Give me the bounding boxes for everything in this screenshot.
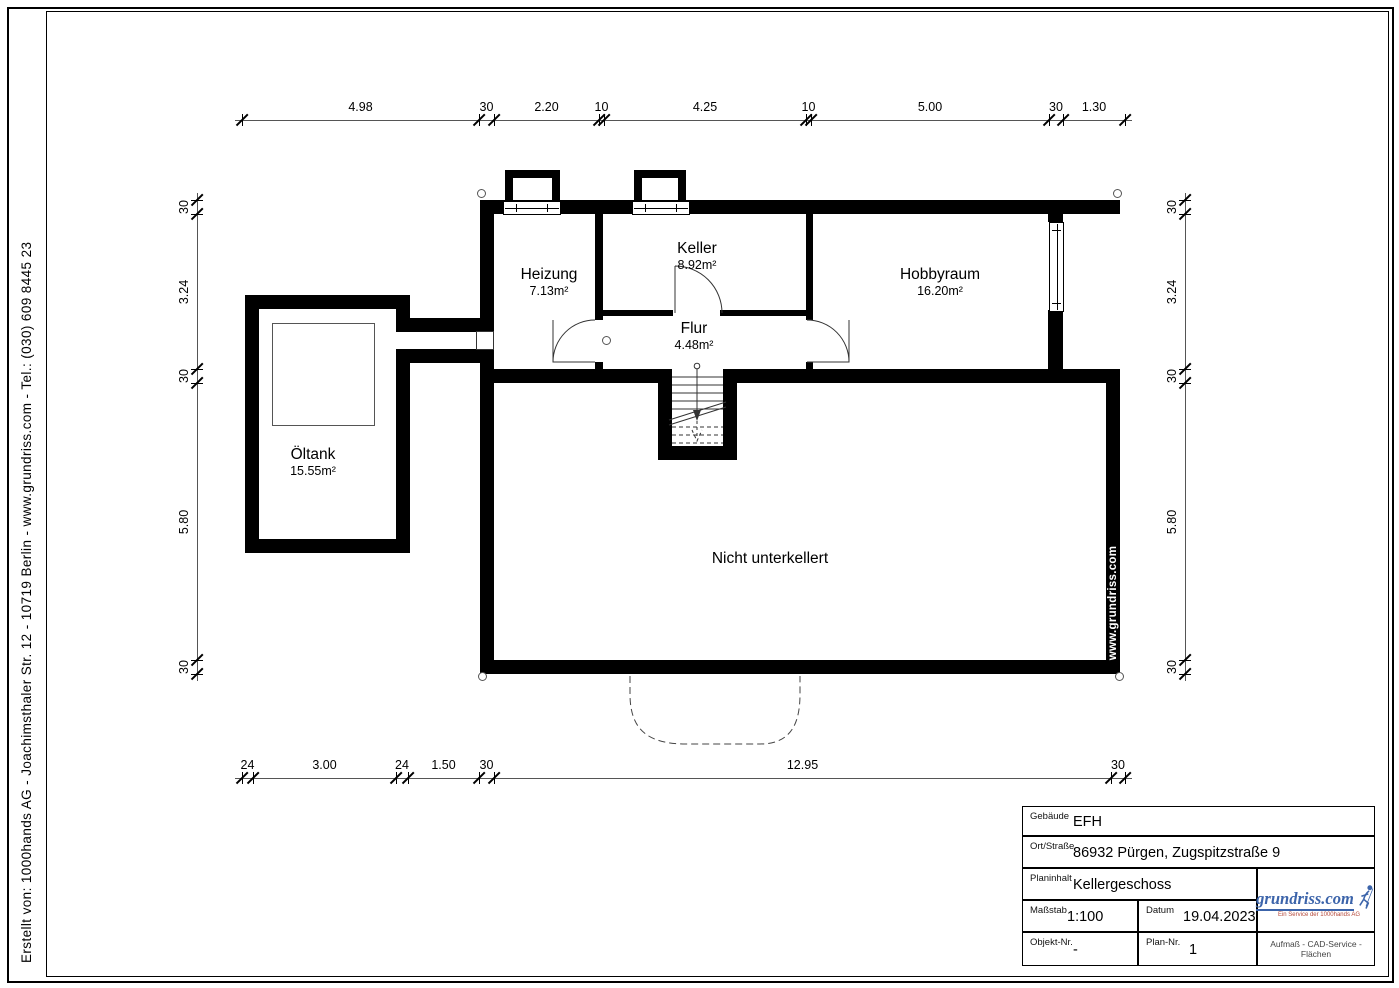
- survey-point: [477, 189, 486, 198]
- room-label-nicht-unterkellert: Nicht unterkellert: [712, 550, 828, 568]
- creator-credit-text: Erstellt von: 1000hands AG - Joachimstha…: [19, 242, 34, 963]
- titleblock-value-plannr: 1: [1189, 942, 1197, 958]
- dimension-value-right: 30: [1165, 660, 1179, 674]
- wall-hobbyraum-divider-upper: [806, 214, 813, 320]
- titleblock-cell-massstab: Maßstab 1:100: [1022, 900, 1138, 932]
- titleblock-value-massstab: 1:100: [1067, 909, 1103, 925]
- dimension-value-top: 1.30: [1082, 100, 1106, 114]
- dimension-value-left: 30: [177, 660, 191, 674]
- window-hobbyraum: [1049, 222, 1064, 312]
- dimension-value-left: 5.80: [177, 509, 191, 533]
- room-name: Keller: [677, 240, 717, 258]
- window-tick: [645, 204, 646, 212]
- titleblock-label: Datum: [1146, 905, 1174, 916]
- dimension-tick-cross: [1179, 383, 1191, 384]
- wall-hobbyraum-divider-lower: [806, 362, 813, 369]
- wall-passage-top: [403, 318, 480, 332]
- titleblock-cell-datum: Datum 19.04.2023: [1138, 900, 1257, 932]
- survey-point: [602, 336, 611, 345]
- wall-heizung-divider-lower: [595, 362, 603, 369]
- window-glass-line: [505, 208, 559, 209]
- dimension-tick-cross: [1179, 660, 1191, 661]
- window-heizung: [503, 201, 561, 215]
- titleblock-cell-logo: grundriss.com Ein Service der 1000hands …: [1257, 868, 1375, 932]
- titleblock-cell-ort: Ort/Straße 86932 Pürgen, Zugspitzstraße …: [1022, 836, 1375, 868]
- room-label-oeltank: Öltank 15.55m²: [290, 446, 336, 479]
- dimension-tick-cross: [1111, 772, 1112, 784]
- dimension-tick-cross: [1125, 114, 1126, 126]
- dimension-value-top: 30: [480, 100, 494, 114]
- wall-keller-flur-left: [603, 310, 673, 316]
- titleblock-value-planinhalt: Kellergeschoss: [1073, 877, 1171, 893]
- dimension-tick-cross: [1179, 200, 1191, 201]
- titleblock-cell-plannr: Plan-Nr. 1: [1138, 932, 1257, 966]
- grundriss-logo-text: grundriss.com: [1256, 890, 1354, 910]
- logo-slogan: Aufmaß - CAD-Service - Flächen: [1258, 939, 1374, 959]
- room-area: 8.92m²: [677, 258, 717, 273]
- titleblock-cell-gebaeude: Gebäude EFH: [1022, 806, 1375, 836]
- dimension-tick-cross: [1125, 772, 1126, 784]
- lightwell2-right-wall: [678, 170, 686, 201]
- dimension-value-right: 30: [1165, 200, 1179, 214]
- titleblock-label: Objekt-Nr.: [1030, 937, 1073, 948]
- wall-mid-left: [480, 369, 672, 383]
- survey-point: [478, 672, 487, 681]
- dimension-value-top: 10: [595, 100, 609, 114]
- titleblock-value-gebaeude: EFH: [1073, 814, 1102, 830]
- wall-top-exterior: [480, 200, 1120, 214]
- dimension-value-top: 10: [802, 100, 816, 114]
- dimension-tick-cross: [1179, 214, 1191, 215]
- dimension-tick-cross: [242, 772, 243, 784]
- survey-point: [1115, 672, 1124, 681]
- dimension-tick-cross: [811, 114, 812, 126]
- titleblock-label: Ort/Straße: [1030, 841, 1074, 852]
- dimension-tick-cross: [1179, 674, 1191, 675]
- room-area: 7.13m²: [521, 284, 578, 299]
- dimension-value-left: 3.24: [177, 279, 191, 303]
- dimension-tick-cross: [191, 200, 203, 201]
- dimension-tick-cross: [253, 772, 254, 784]
- titleblock-cell-planinhalt: Planinhalt Kellergeschoss: [1022, 868, 1257, 900]
- logo-block: grundriss.com Ein Service der 1000hands …: [1258, 869, 1374, 931]
- titleblock-value-ort: 86932 Pürgen, Zugspitzstraße 9: [1073, 845, 1280, 861]
- room-area: 16.20m²: [900, 284, 980, 299]
- dimension-tick-cross: [408, 772, 409, 784]
- window-glass-line: [1057, 224, 1058, 310]
- dimension-value-top: 4.25: [693, 100, 717, 114]
- titleblock-label: Planinhalt: [1030, 873, 1072, 884]
- wall-stairwell-bottom: [658, 446, 737, 460]
- dimension-tick-cross: [191, 214, 203, 215]
- dimension-value-bottom: 30: [480, 758, 494, 772]
- dimension-value-bottom: 24: [395, 758, 409, 772]
- dimension-value-right: 30: [1165, 369, 1179, 383]
- window-tick: [547, 204, 548, 212]
- logo-subtitle: Ein Service der 1000hands AG: [1258, 912, 1374, 918]
- window-tick: [1052, 230, 1061, 231]
- dimension-tick-cross: [191, 383, 203, 384]
- dimension-value-top: 30: [1049, 100, 1063, 114]
- wall-passage-bottom: [403, 349, 480, 363]
- dimension-value-right: 3.24: [1165, 279, 1179, 303]
- wall-oeltank-left: [245, 295, 259, 553]
- wall-heizung-divider-upper: [595, 214, 603, 320]
- dimension-line-right: [1185, 193, 1186, 681]
- room-name: Nicht unterkellert: [712, 550, 828, 568]
- dimension-value-bottom: 1.50: [431, 758, 455, 772]
- room-name: Hobbyraum: [900, 266, 980, 284]
- room-area: 4.48m²: [675, 338, 714, 353]
- lightwell1-right-wall: [552, 170, 560, 201]
- dimension-tick-cross: [494, 114, 495, 126]
- wall-left-exterior-lower: [480, 349, 494, 674]
- dimension-tick-cross: [396, 772, 397, 784]
- dimension-tick-cross: [479, 772, 480, 784]
- dimension-value-top: 5.00: [918, 100, 942, 114]
- titleblock-cell-slogan: Aufmaß - CAD-Service - Flächen: [1257, 932, 1375, 966]
- window-tick: [516, 204, 517, 212]
- titleblock-label: Maßstab: [1030, 905, 1067, 916]
- titleblock-label: Gebäude: [1030, 811, 1069, 822]
- dimension-value-top: 2.20: [534, 100, 558, 114]
- dimension-tick-cross: [1179, 369, 1191, 370]
- wall-hobbyraum-right-stub-top: [1048, 214, 1063, 222]
- wall-keller-flur-right: [720, 310, 811, 316]
- room-name: Flur: [675, 320, 714, 338]
- wall-hobbyraum-right-stub-bottom: [1048, 310, 1063, 369]
- dimension-value-bottom: 24: [241, 758, 255, 772]
- wall-mid-right: [723, 369, 1120, 383]
- wall-oeltank-bottom: [245, 539, 410, 553]
- window-glass-line: [634, 208, 688, 209]
- wall-left-exterior-upper: [480, 200, 494, 332]
- window-tick: [676, 204, 677, 212]
- wall-oeltank-right-lower: [396, 349, 410, 553]
- dimension-line-left: [197, 193, 198, 681]
- titleblock-cell-objekt: Objekt-Nr. -: [1022, 932, 1138, 966]
- titleblock-label: Plan-Nr.: [1146, 937, 1180, 948]
- room-area: 15.55m²: [290, 464, 336, 479]
- dimension-value-bottom: 30: [1111, 758, 1125, 772]
- titleblock-value-datum: 19.04.2023: [1183, 909, 1256, 925]
- survey-point: [1113, 189, 1122, 198]
- dimension-tick-cross: [1063, 114, 1064, 126]
- dimension-tick-cross: [604, 114, 605, 126]
- logo-figure-icon: [1356, 883, 1376, 911]
- wall-oeltank-top: [245, 295, 410, 309]
- room-label-heizung: Heizung 7.13m²: [521, 266, 578, 299]
- room-name: Heizung: [521, 266, 578, 284]
- dimension-value-bottom: 3.00: [312, 758, 336, 772]
- window-keller: [632, 201, 690, 215]
- dimension-value-left: 30: [177, 369, 191, 383]
- dimension-tick-cross: [479, 114, 480, 126]
- room-label-flur: Flur 4.48m²: [675, 320, 714, 353]
- dimension-tick-cross: [242, 114, 243, 126]
- dimension-tick-cross: [494, 772, 495, 784]
- titleblock-value-objekt: -: [1073, 942, 1078, 958]
- passage-door-frame: [476, 331, 494, 350]
- room-name: Öltank: [290, 446, 336, 464]
- wall-bottom-exterior: [480, 660, 1120, 674]
- dimension-value-right: 5.80: [1165, 509, 1179, 533]
- dimension-tick-cross: [1049, 114, 1050, 126]
- dimension-value-left: 30: [177, 200, 191, 214]
- oil-tank-symbol: [272, 323, 375, 426]
- dimension-tick-cross: [191, 660, 203, 661]
- dimension-tick-cross: [191, 674, 203, 675]
- watermark-text: www.grundriss.com: [1107, 546, 1119, 661]
- room-label-keller: Keller 8.92m²: [677, 240, 717, 273]
- dimension-line-bottom: [235, 778, 1132, 779]
- room-label-hobbyraum: Hobbyraum 16.20m²: [900, 266, 980, 299]
- window-tick: [1052, 303, 1061, 304]
- dimension-tick-cross: [191, 369, 203, 370]
- dimension-line-top: [235, 120, 1132, 121]
- dimension-value-bottom: 12.95: [787, 758, 818, 772]
- floor-plan-page: Erstellt von: 1000hands AG - Joachimstha…: [0, 0, 1399, 988]
- dimension-value-top: 4.98: [348, 100, 372, 114]
